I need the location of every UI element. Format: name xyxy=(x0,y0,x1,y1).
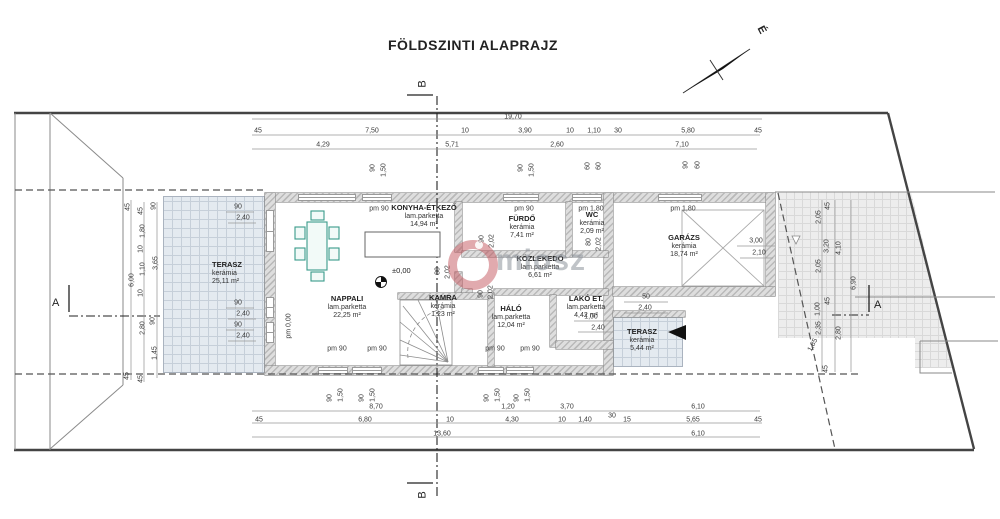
dimension-label: 30 xyxy=(608,413,616,420)
dimension-label: 60 xyxy=(695,161,702,169)
dimension-label: 2,40 xyxy=(638,305,652,312)
dimension-label: 1,50 xyxy=(338,388,345,402)
kitchen-counter-icon xyxy=(365,232,440,257)
section-ticks xyxy=(69,95,869,483)
slope-triangle-icon xyxy=(792,236,800,244)
dimension-label: 45 xyxy=(138,207,145,215)
dimension-label: 2,05 xyxy=(816,259,823,273)
dimension-label: 45 xyxy=(825,297,832,305)
dimension-label: pm 90 xyxy=(367,346,386,353)
plan-linework xyxy=(0,0,1000,519)
dimension-label: 6,10 xyxy=(691,431,705,438)
dimension-label: 10 xyxy=(446,417,454,424)
dimension-label: 90 xyxy=(514,394,521,402)
dimension-label: 45 xyxy=(124,372,131,380)
dimension-label: 2,40 xyxy=(591,325,605,332)
dimension-label: 1,50 xyxy=(495,388,502,402)
dimension-label: 2,80 xyxy=(140,321,147,335)
dimension-label: 15 xyxy=(623,417,631,424)
dimension-label: 90 xyxy=(359,394,366,402)
floor-plan-canvas: FÖLDSZINTI ALAPRAJZ É B B A A ±0,00 TERA… xyxy=(0,0,1000,519)
dimension-label: pm 90 xyxy=(514,206,533,213)
level-marker-icon xyxy=(376,277,387,288)
dimension-label: pm 90 xyxy=(369,206,388,213)
dimension-label: 90 xyxy=(518,164,525,172)
room-label-konyha-tkez-: KONYHA-ÉTKEZŐlam.parketta14,94 m² xyxy=(391,204,456,229)
dimension-label: 1,00 xyxy=(584,314,598,321)
section-marker-a-left: A xyxy=(52,297,59,309)
section-marker-b-top: B xyxy=(417,80,429,87)
room-label-k-zleked-: KÖZLEKEDŐlam.parketta6,61 m² xyxy=(516,255,563,280)
dimension-label: 60 xyxy=(585,162,592,170)
dimension-label: 45 xyxy=(125,203,132,211)
dimension-label: 4,30 xyxy=(505,417,519,424)
room-label-f-rd-: FÜRDŐkerámia7,41 m² xyxy=(509,215,536,240)
dining-table-icon xyxy=(295,211,339,281)
dimension-label: 3,00 xyxy=(749,238,763,245)
dimension-label: 5,80 xyxy=(681,128,695,135)
dimension-label: 80 xyxy=(435,267,442,275)
dimension-label: pm 1,80 xyxy=(670,206,695,213)
dimension-label: 2,40 xyxy=(236,215,250,222)
dimension-label: 1,50 xyxy=(525,388,532,402)
dimension-label: 45 xyxy=(754,417,762,424)
dimension-label: 2,02 xyxy=(488,285,495,299)
dimension-label: 5,65 xyxy=(686,417,700,424)
dimension-label: 6,80 xyxy=(358,417,372,424)
dimension-label: 1,50 xyxy=(529,163,536,177)
dimension-label: 90 xyxy=(478,290,485,298)
dimension-label: 6,10 xyxy=(691,404,705,411)
section-marker-a-right: A xyxy=(874,299,881,311)
dimension-label: 7,50 xyxy=(365,128,379,135)
dimension-label: 2,80 xyxy=(836,326,843,340)
dimension-label: 50 xyxy=(642,294,650,301)
dimension-label: 1,20 xyxy=(501,404,515,411)
room-label-h-l-: HÁLÓlam.parketta12,04 m² xyxy=(492,305,531,330)
room-label-nappali: NAPPALIlam.parketta22,25 m² xyxy=(328,295,367,320)
dimension-label: 3,20 xyxy=(824,239,831,253)
dimension-label: 1,10 xyxy=(140,262,147,276)
dimension-label: 3,65 xyxy=(153,256,160,270)
dimension-label: 90 xyxy=(683,161,690,169)
dimension-label: 45 xyxy=(255,417,263,424)
dimension-label: pm 0,00 xyxy=(286,313,293,338)
dimension-label: 30 xyxy=(614,128,622,135)
dimension-label: 2,10 xyxy=(752,250,766,257)
dimension-label: 80 xyxy=(586,238,593,246)
dimension-label: 3,70 xyxy=(560,404,574,411)
dimension-label: 45 xyxy=(254,128,262,135)
dimension-label: 10 xyxy=(461,128,469,135)
dimension-label: 45 xyxy=(138,375,145,383)
dimension-label: 1,00 xyxy=(815,302,822,316)
room-label-kamra: KAMRAkerámia1,23 m² xyxy=(429,294,457,319)
dimension-label: pm 90 xyxy=(520,346,539,353)
dimension-label: 90 xyxy=(151,202,158,210)
dimension-label: 2,40 xyxy=(236,333,250,340)
dimension-label: 2,02 xyxy=(445,265,452,279)
dimension-label: pm 1,80 xyxy=(578,206,603,213)
dimension-label: 90 xyxy=(484,394,491,402)
room-label-wc: WCkerámia2,09 m² xyxy=(580,211,605,236)
dimension-label: 90 xyxy=(150,317,157,325)
dimension-label: 1,50 xyxy=(370,388,377,402)
dimension-label: 45 xyxy=(823,365,830,373)
dimension-label: 90 xyxy=(234,300,242,307)
dimension-label: 90 xyxy=(479,235,486,243)
dimension-label: 3,90 xyxy=(518,128,532,135)
dimension-label: 10 xyxy=(138,289,145,297)
dimension-label: 1,50 xyxy=(381,163,388,177)
dimension-label: 13,60 xyxy=(433,431,451,438)
dimension-label: 2,02 xyxy=(596,237,603,251)
dimension-label: 90 xyxy=(327,394,334,402)
dimension-label: 2,60 xyxy=(550,142,564,149)
level-marker-label: ±0,00 xyxy=(392,266,411,275)
page-title: FÖLDSZINTI ALAPRAJZ xyxy=(388,37,558,53)
dimension-label: 60 xyxy=(596,162,603,170)
dimension-label: 19,70 xyxy=(504,114,522,121)
dimension-label: 1,45 xyxy=(152,346,159,360)
dimension-label: 1,10 xyxy=(587,128,601,135)
room-label-terasz: TERASZkerámia5,44 m² xyxy=(627,328,657,353)
room-label-terasz: TERASZkerámia25,11 m² xyxy=(212,261,242,286)
dimension-label: 45 xyxy=(825,202,832,210)
dimension-label: 10 xyxy=(138,245,145,253)
dimension-label: 8,70 xyxy=(369,404,383,411)
dimension-label: 45 xyxy=(754,128,762,135)
dimension-label: 2,40 xyxy=(236,311,250,318)
dimension-label: 6,00 xyxy=(129,273,136,287)
dimension-label: 4,10 xyxy=(836,241,843,255)
dimension-label: 7,10 xyxy=(675,142,689,149)
dimension-label: 2,05 xyxy=(816,210,823,224)
dimension-label: pm 90 xyxy=(485,346,504,353)
dimension-label: 90 xyxy=(234,204,242,211)
entrance-arrow-icon xyxy=(668,325,686,340)
dimension-label: 10 xyxy=(558,417,566,424)
dimension-label: 5,71 xyxy=(445,142,459,149)
section-marker-b-bottom: B xyxy=(417,491,429,498)
dimension-label: 10 xyxy=(566,128,574,135)
dimension-label: 90 xyxy=(370,164,377,172)
dimension-label: 6,90 xyxy=(851,276,858,290)
dimension-label: pm 90 xyxy=(327,346,346,353)
dimension-label: 1,80 xyxy=(140,224,147,238)
dimension-label: 2,35 xyxy=(816,321,823,335)
north-arrow-icon xyxy=(683,49,750,93)
dimension-label: 4,29 xyxy=(316,142,330,149)
dimension-label: 2,02 xyxy=(489,234,496,248)
dimension-label: 90 xyxy=(234,322,242,329)
dimension-label: 1,40 xyxy=(578,417,592,424)
room-label-gar-zs: GARÁZSkerámia18,74 m² xyxy=(668,234,700,259)
